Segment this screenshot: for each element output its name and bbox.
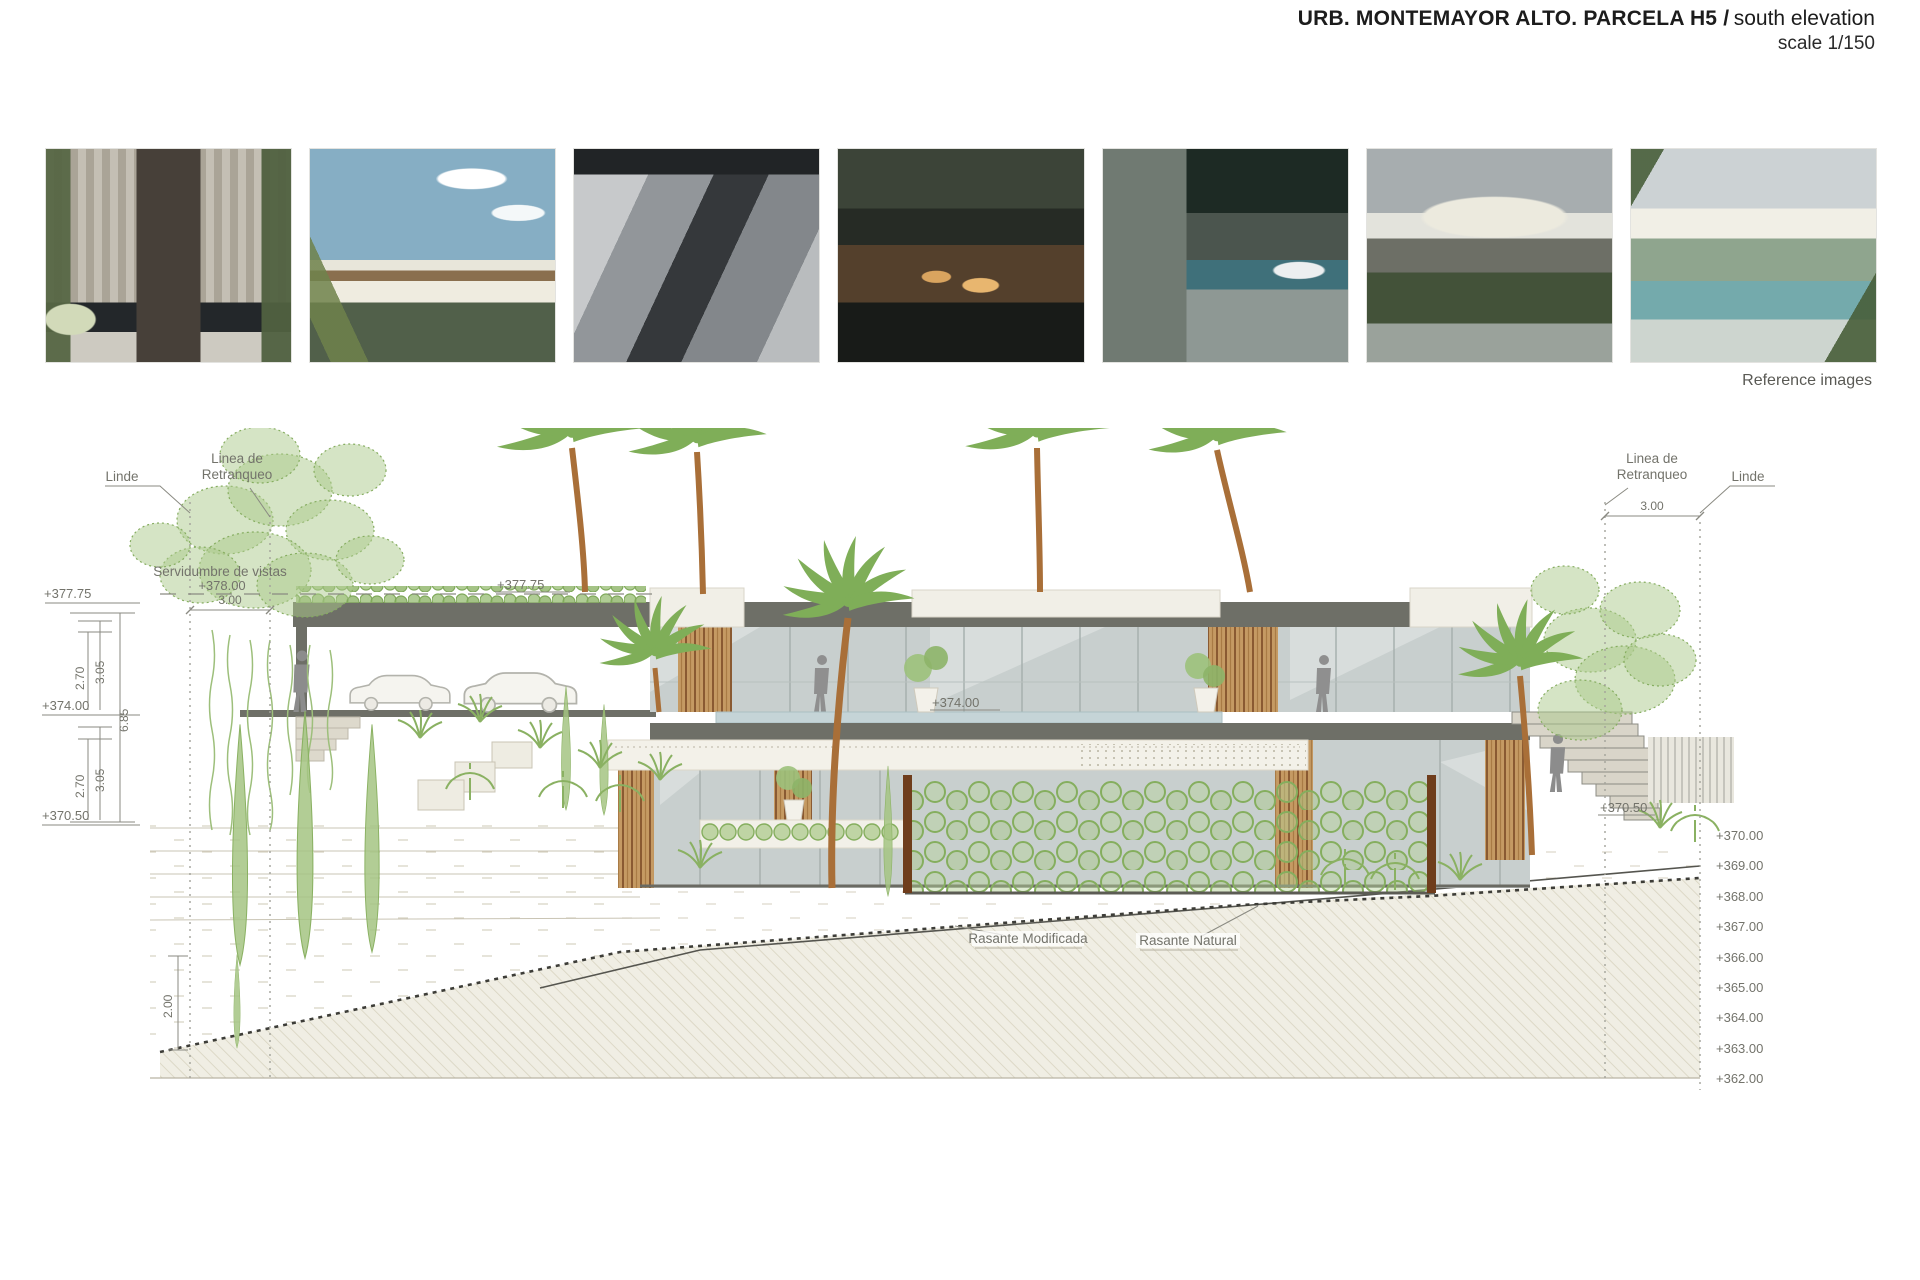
hedge-post-right [1427,775,1436,893]
dim-270-upper: 2.70 [73,666,87,690]
rasante-natural-label: Rasante Natural [1139,933,1237,948]
reference-image-3 [573,148,820,363]
slat-fence-right [1648,737,1734,803]
setback-dim-right: 3.00 [1601,499,1704,520]
car-outline-1 [350,676,450,711]
level-label-roof: +377.75 [44,586,91,601]
servidumbre-label: Servidumbre de vistas [153,564,287,579]
sheet-title: URB. MONTEMAYOR ALTO. PARCELA H5 / south… [1298,6,1875,32]
scale-mark-368: +368.00 [1716,889,1763,904]
pool-edge-strip [716,712,1222,723]
retranqueo-label-left-1: Linea de [211,451,263,466]
reference-image-7 [1630,148,1877,363]
scale-mark-362: +362.00 [1716,1071,1763,1086]
left-level-stack: +377.75 +374.00 +370.50 2.70 3.05 2.70 3… [42,586,140,825]
hedge-post-left [903,775,912,893]
scale-mark-369: +369.00 [1716,858,1763,873]
reference-image-5 [1102,148,1349,363]
reference-image-4 [837,148,1084,363]
view-name: south elevation [1734,7,1875,30]
person-figure-carport [293,650,309,712]
scale-mark-363: +363.00 [1716,1041,1763,1056]
wood-slat-panel-upper-left [678,627,732,712]
mid-slab-fascia [650,723,1530,740]
parapet-volume-left [650,588,744,627]
project-title: URB. MONTEMAYOR ALTO. PARCELA H5 / [1298,7,1730,30]
reference-image-1 [45,148,292,363]
dim-total-685: 6.85 [117,708,131,732]
retranqueo-label-left-2: Retranqueo [202,467,273,482]
reference-images-caption: Reference images [1742,372,1872,390]
linde-label-right: Linde [1731,469,1764,484]
deck-level-mark: +374.00 [932,695,979,710]
scale-mark-365: +365.00 [1716,980,1763,995]
garden-level-mark: +370.50 [1600,800,1647,815]
level-label-garden: +370.50 [42,808,89,823]
reference-image-2 [309,148,556,363]
reference-image-strip [45,148,1877,363]
rasante-modificada-label: Rasante Modificada [968,931,1088,946]
setback-dim-right-value: 3.00 [1640,499,1664,513]
setback-dim-left-value: 3.00 [218,593,242,607]
sheet-title-block: URB. MONTEMAYOR ALTO. PARCELA H5 / south… [1298,6,1875,56]
level-label-deck: +374.00 [42,698,89,713]
reference-image-6 [1366,148,1613,363]
parapet-volume-center [912,590,1220,617]
drawing-sheet: { "header": { "title_bold": "URB. MONTEM… [0,0,1920,1280]
servidumbre-level: +378.00 [198,578,245,593]
sheet-scale: scale 1/150 [1298,32,1875,56]
terraced-planter-boxes [418,742,532,810]
dim-305-upper: 3.05 [93,660,107,684]
scale-mark-367: +367.00 [1716,919,1763,934]
dim-305-lower: 3.05 [93,768,107,792]
roof-level-mark: +377.75 [497,577,544,592]
scale-mark-370: +370.00 [1716,828,1763,843]
south-elevation-drawing: 3.00 3.00 +377.75 +374.00 [0,428,1920,1170]
small-tree-dim-value: 2.00 [161,994,175,1018]
right-elevation-scale: +370.00 +369.00 +368.00 +367.00 +366.00 … [1716,828,1763,1086]
bush-row [702,824,898,840]
scale-mark-364: +364.00 [1716,1010,1763,1025]
parapet-volume-right [1410,588,1532,627]
scale-mark-366: +366.00 [1716,950,1763,965]
linde-label-left: Linde [105,469,138,484]
dim-270-lower: 2.70 [73,774,87,798]
retranqueo-label-right-2: Retranqueo [1617,467,1688,482]
wood-slat-panel-lower-right [1485,740,1525,860]
retranqueo-label-right-1: Linea de [1626,451,1678,466]
hedge-wall [903,775,1436,893]
